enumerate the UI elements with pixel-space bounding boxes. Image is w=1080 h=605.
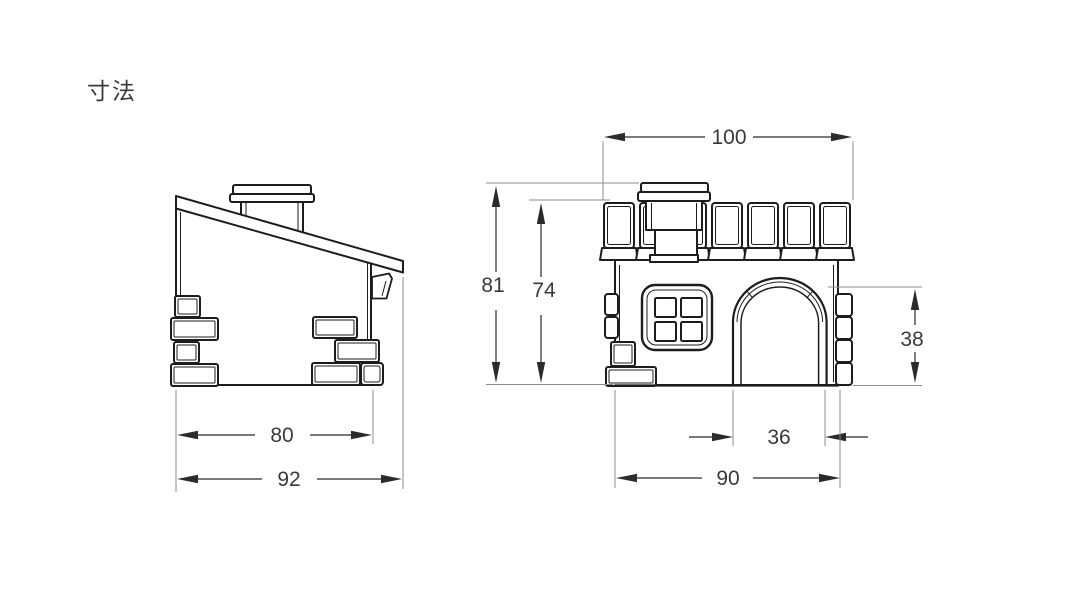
roof-tile-foot xyxy=(780,248,818,260)
roof-tile xyxy=(820,203,850,248)
arrowhead-up xyxy=(492,186,500,207)
front-chimney-cap-bottom xyxy=(638,192,710,201)
arrowhead-right xyxy=(831,133,852,141)
arrowhead-left xyxy=(604,133,625,141)
arrowhead-right xyxy=(381,475,402,483)
front-right-bricks xyxy=(836,294,852,385)
roof-tile-foot xyxy=(708,248,746,260)
roof-tile-foot xyxy=(600,248,638,260)
front-roof-tiles xyxy=(600,203,854,260)
window xyxy=(642,285,712,350)
dim-label-36: 36 xyxy=(767,426,790,449)
window-pane xyxy=(655,322,676,341)
roof-tile xyxy=(748,203,778,248)
arrowhead-down xyxy=(537,362,545,383)
roof-tile xyxy=(784,203,814,248)
dim-label-90: 90 xyxy=(716,467,739,490)
roof-tile xyxy=(712,203,742,248)
arrowhead-right xyxy=(712,433,733,441)
side-chimney-cap-top xyxy=(233,185,311,194)
roof-tile xyxy=(604,203,634,248)
dim-label-74: 74 xyxy=(532,279,556,302)
front-view: 100 81 74 xyxy=(481,126,923,490)
brick xyxy=(836,317,852,339)
arrowhead-left xyxy=(616,474,637,482)
side-chimney-cap-bottom xyxy=(230,194,314,202)
front-chimney-foot xyxy=(650,255,698,262)
arrowhead-left xyxy=(825,433,846,441)
dim-74: 74 xyxy=(529,200,610,383)
front-chimney-body xyxy=(646,201,702,230)
arrowhead-left xyxy=(177,431,198,439)
dim-label-38: 38 xyxy=(900,328,923,351)
brick xyxy=(836,340,852,362)
dim-label-100: 100 xyxy=(711,126,746,149)
dim-label-92: 92 xyxy=(277,468,300,491)
front-chimney-neck xyxy=(655,230,697,256)
arrowhead-down xyxy=(492,362,500,383)
brick xyxy=(836,363,852,385)
dim-90: 90 xyxy=(615,390,840,490)
dim-label-81: 81 xyxy=(481,274,504,297)
brick xyxy=(605,294,618,315)
technical-drawing: 80 92 xyxy=(0,0,1080,605)
front-chimney-cap-top xyxy=(641,183,708,192)
brick xyxy=(836,294,852,316)
brick xyxy=(605,317,618,338)
window-pane xyxy=(655,298,676,317)
roof-tile-foot xyxy=(816,248,854,260)
window-pane xyxy=(681,298,702,317)
roof-tile-foot xyxy=(744,248,782,260)
dimension-drawing-page: 寸法 xyxy=(0,0,1080,605)
dim-36: 36 xyxy=(689,390,868,449)
arrowhead-down xyxy=(911,362,919,383)
dim-80: 80 xyxy=(176,390,373,492)
window-pane xyxy=(681,322,702,341)
side-view: 80 92 xyxy=(171,185,403,492)
arrowhead-right xyxy=(819,474,840,482)
arrowhead-up xyxy=(537,203,545,224)
arrowhead-left xyxy=(177,475,198,483)
gutter-spout xyxy=(372,274,392,299)
arrowhead-up xyxy=(911,289,919,310)
dim-label-80: 80 xyxy=(270,424,293,447)
arrowhead-right xyxy=(351,431,372,439)
